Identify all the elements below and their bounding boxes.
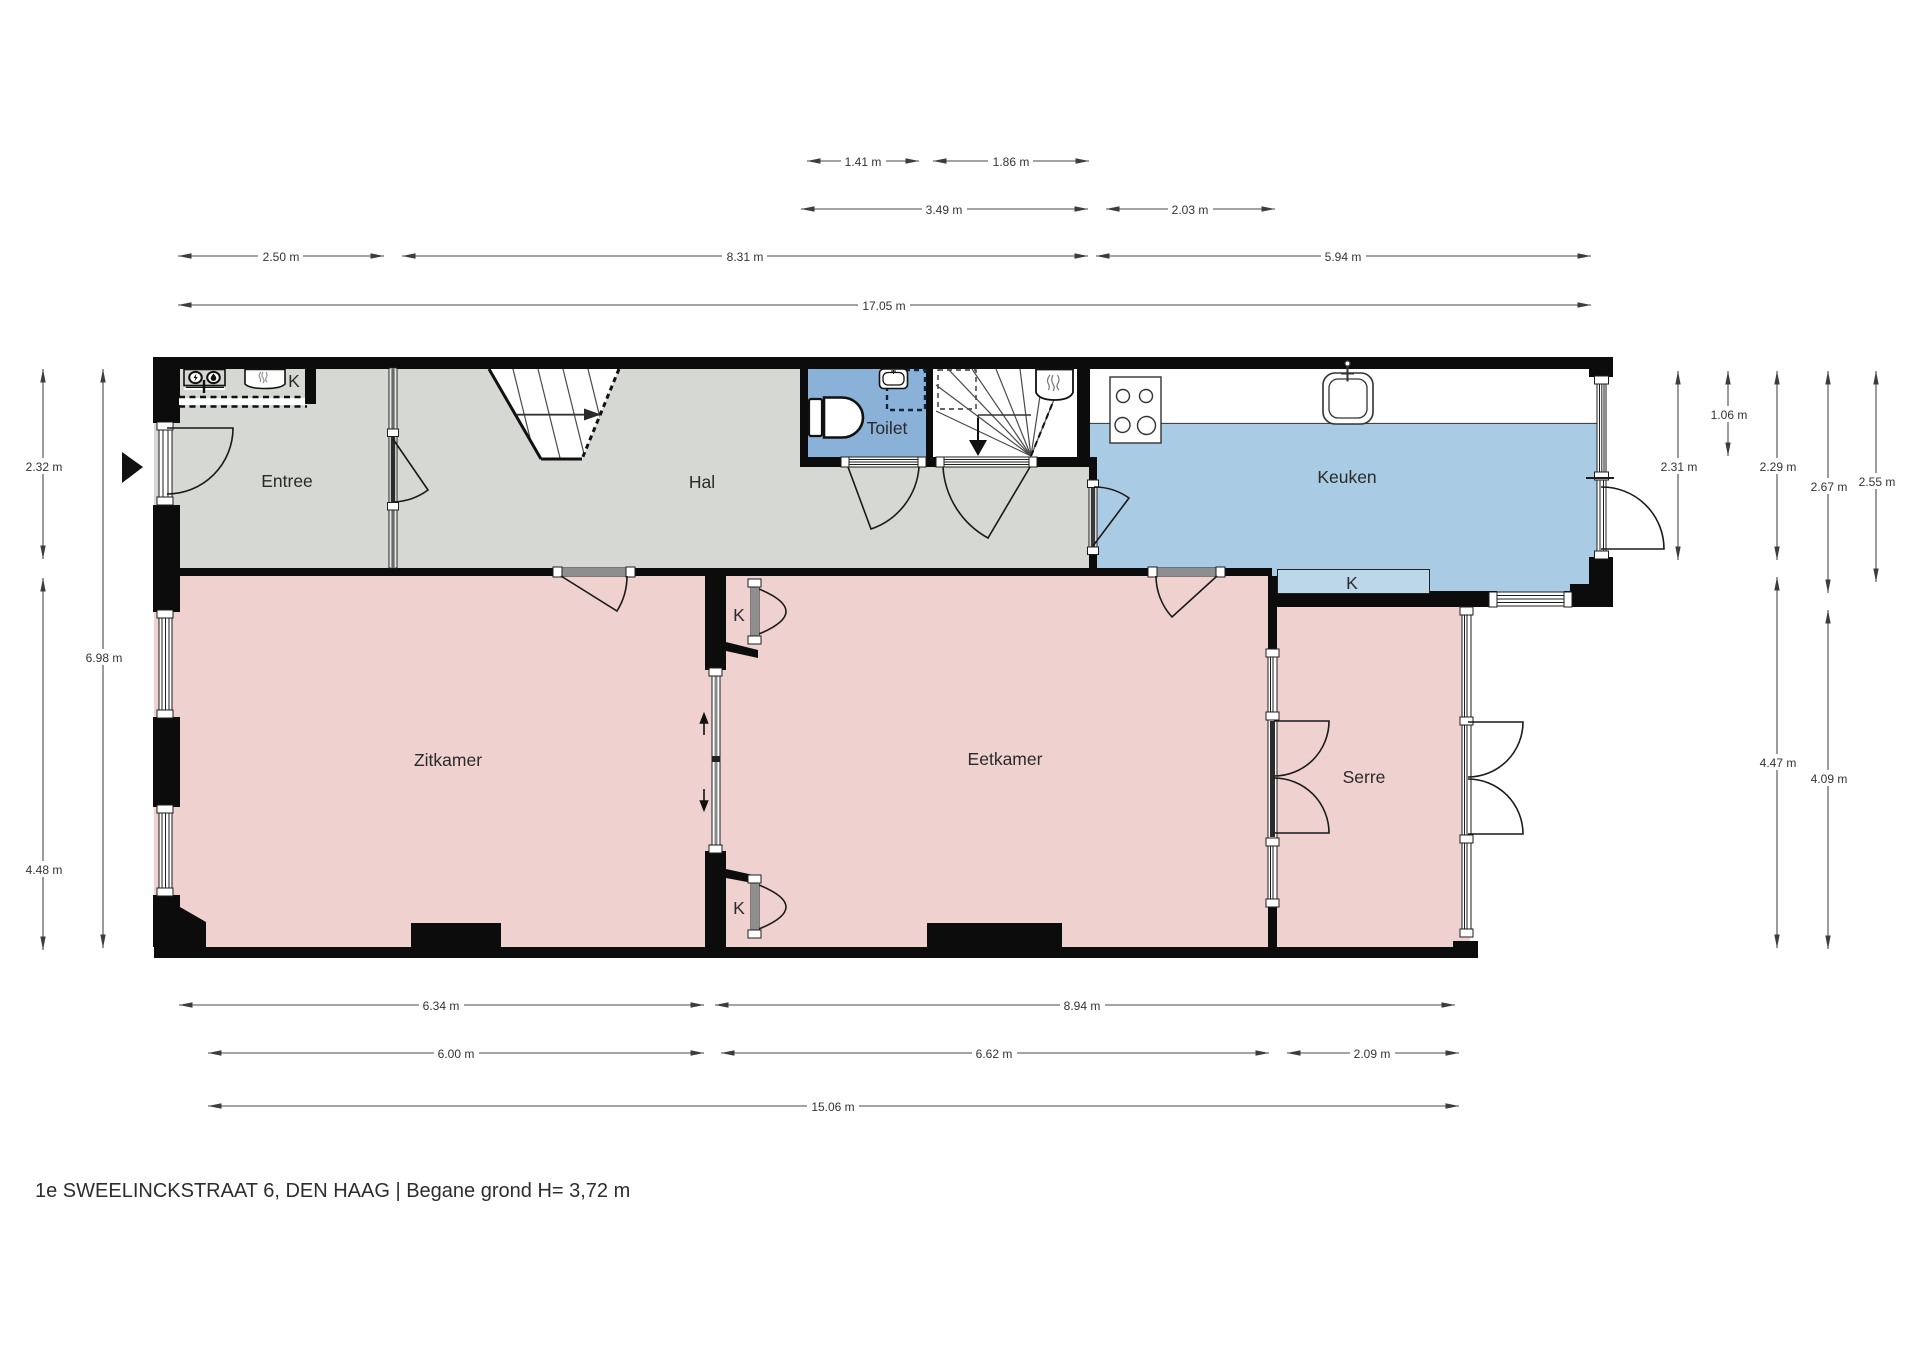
svg-text:Keuken: Keuken xyxy=(1317,467,1376,487)
svg-text:2.03 m: 2.03 m xyxy=(1172,203,1209,217)
svg-text:2.31 m: 2.31 m xyxy=(1661,460,1698,474)
svg-text:K: K xyxy=(733,605,745,625)
svg-text:6.00 m: 6.00 m xyxy=(438,1047,475,1061)
svg-text:K: K xyxy=(733,898,745,918)
svg-text:15.06 m: 15.06 m xyxy=(811,1100,854,1114)
svg-text:2.50 m: 2.50 m xyxy=(263,250,300,264)
svg-text:1.41 m: 1.41 m xyxy=(845,155,882,169)
svg-text:K: K xyxy=(288,371,300,391)
svg-text:6.62 m: 6.62 m xyxy=(976,1047,1013,1061)
svg-text:4.09 m: 4.09 m xyxy=(1811,772,1848,786)
svg-text:2.29 m: 2.29 m xyxy=(1760,460,1797,474)
svg-text:17.05 m: 17.05 m xyxy=(862,299,905,313)
svg-text:2.09 m: 2.09 m xyxy=(1354,1047,1391,1061)
svg-text:Zitkamer: Zitkamer xyxy=(414,750,482,770)
svg-text:2.67 m: 2.67 m xyxy=(1811,480,1848,494)
svg-text:4.48 m: 4.48 m xyxy=(26,863,63,877)
svg-text:1e SWEELINCKSTRAAT 6, DEN HAAG: 1e SWEELINCKSTRAAT 6, DEN HAAG | Begane … xyxy=(35,1180,630,1202)
svg-text:8.94 m: 8.94 m xyxy=(1064,999,1101,1013)
svg-text:6.98 m: 6.98 m xyxy=(86,651,123,665)
svg-text:1.86 m: 1.86 m xyxy=(993,155,1030,169)
svg-text:Hal: Hal xyxy=(689,472,715,492)
svg-text:Eetkamer: Eetkamer xyxy=(968,749,1043,769)
svg-text:2.55 m: 2.55 m xyxy=(1859,475,1896,489)
svg-text:K: K xyxy=(1346,573,1358,593)
svg-text:2.32 m: 2.32 m xyxy=(26,460,63,474)
svg-text:Entree: Entree xyxy=(261,471,313,491)
svg-text:1.06 m: 1.06 m xyxy=(1711,408,1748,422)
svg-text:4.47 m: 4.47 m xyxy=(1760,756,1797,770)
svg-text:5.94 m: 5.94 m xyxy=(1325,250,1362,264)
svg-text:Toilet: Toilet xyxy=(867,418,908,438)
svg-text:8.31 m: 8.31 m xyxy=(727,250,764,264)
svg-text:Serre: Serre xyxy=(1343,767,1386,787)
svg-text:6.34 m: 6.34 m xyxy=(423,999,460,1013)
svg-text:3.49 m: 3.49 m xyxy=(926,203,963,217)
